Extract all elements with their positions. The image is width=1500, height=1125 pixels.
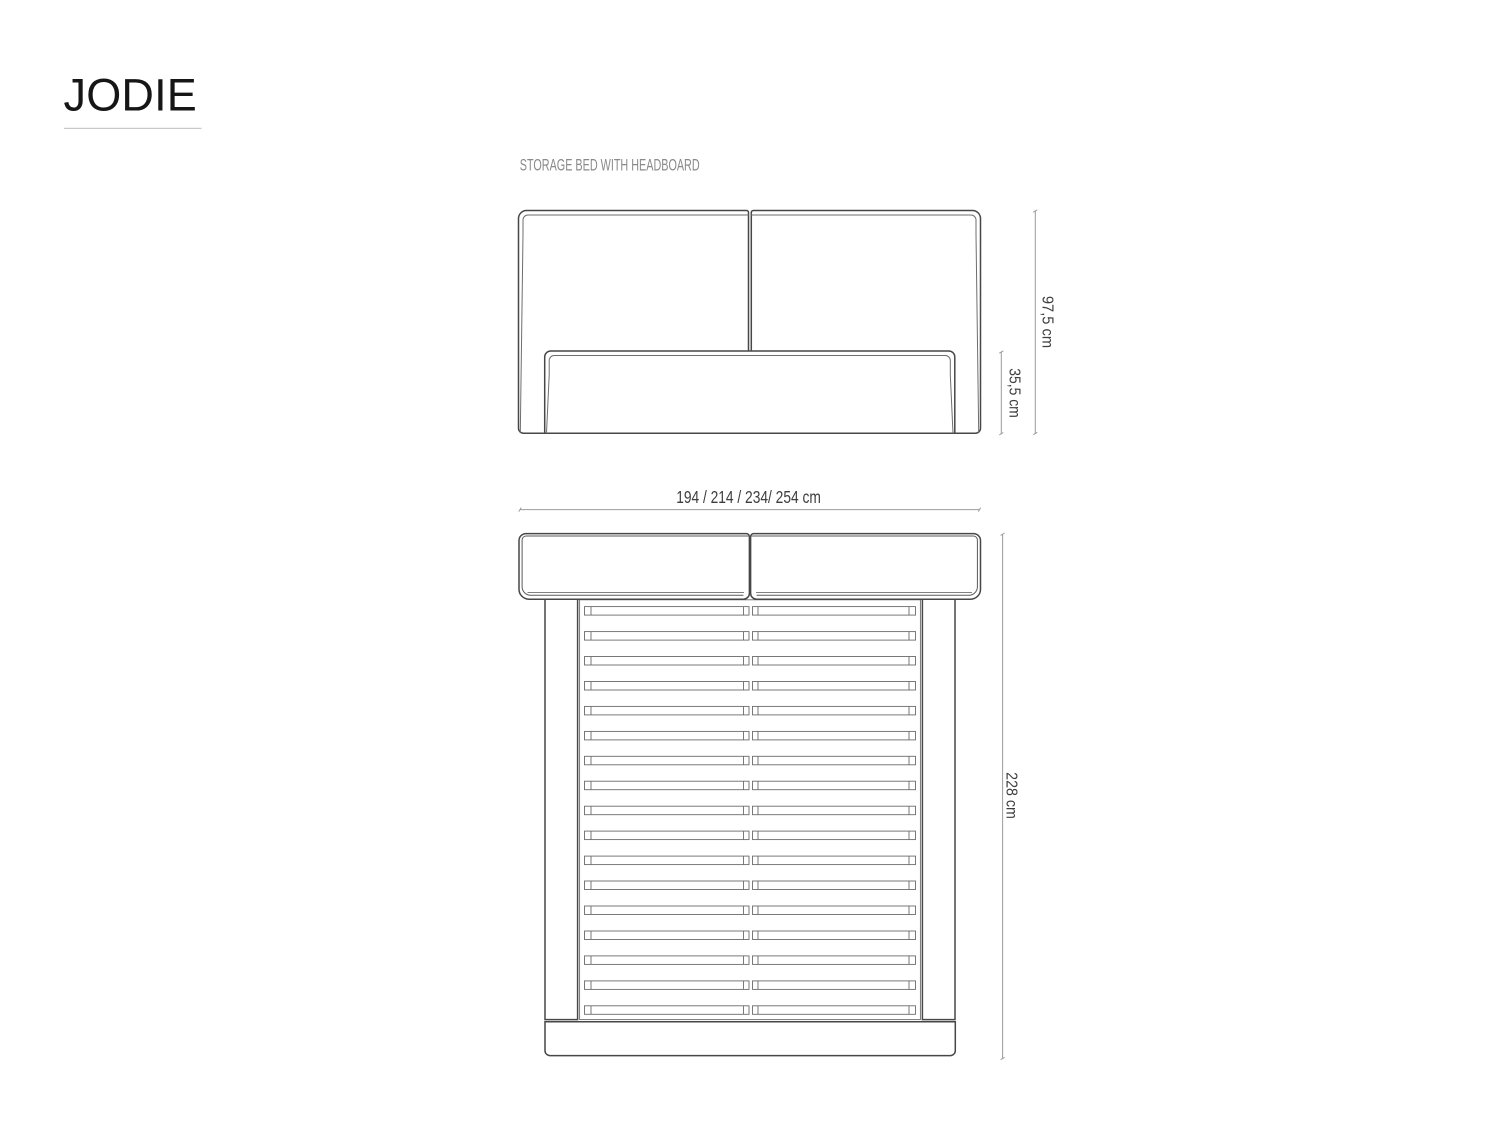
svg-text:STORAGE BED WITH HEADBOARD: STORAGE BED WITH HEADBOARD (520, 156, 700, 175)
svg-text:97,5 cm: 97,5 cm (1038, 296, 1055, 348)
svg-text:194 / 214 / 234/ 254 cm: 194 / 214 / 234/ 254 cm (676, 489, 821, 508)
svg-text:228 cm: 228 cm (1003, 772, 1020, 819)
svg-text:JODIE: JODIE (64, 70, 198, 121)
svg-text:35,5 cm: 35,5 cm (1005, 368, 1022, 418)
